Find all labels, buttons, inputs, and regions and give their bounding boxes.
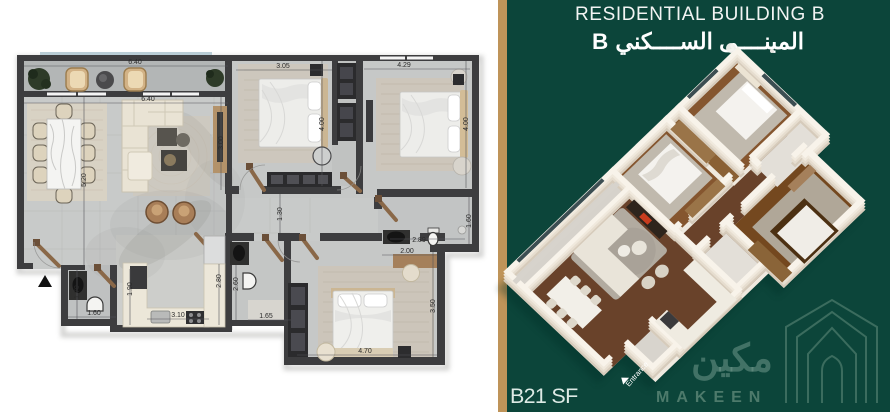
svg-text:1.30: 1.30 xyxy=(277,207,284,221)
svg-text:MAKEEN: MAKEEN xyxy=(656,389,767,406)
svg-text:6.40: 6.40 xyxy=(128,59,142,66)
svg-text:2.89: 2.89 xyxy=(412,237,426,244)
svg-text:4.70: 4.70 xyxy=(358,348,372,355)
svg-text:RESIDENTIAL BUILDING B: RESIDENTIAL BUILDING B xyxy=(575,4,825,25)
svg-text:4.00: 4.00 xyxy=(319,117,326,131)
svg-text:1.90: 1.90 xyxy=(127,282,134,296)
svg-text:2.80: 2.80 xyxy=(216,274,223,288)
svg-text:3.10: 3.10 xyxy=(171,312,185,319)
svg-text:B21 SF: B21 SF xyxy=(510,384,578,408)
svg-text:1.60: 1.60 xyxy=(466,214,473,228)
svg-text:2.00: 2.00 xyxy=(400,248,414,255)
svg-text:5.20: 5.20 xyxy=(81,173,88,187)
svg-text:مكين: مكين xyxy=(691,338,773,381)
svg-text:1.65: 1.65 xyxy=(259,313,273,320)
svg-text:2.60: 2.60 xyxy=(233,277,240,291)
svg-text:1.70: 1.70 xyxy=(74,285,81,299)
svg-text:3.05: 3.05 xyxy=(276,63,290,70)
svg-text:3.00: 3.00 xyxy=(218,136,225,150)
svg-text:1.60: 1.60 xyxy=(87,310,101,317)
svg-text:4.29: 4.29 xyxy=(397,62,411,69)
svg-text:4.00: 4.00 xyxy=(463,117,470,131)
svg-text:6.40: 6.40 xyxy=(141,96,155,103)
svg-text:3.50: 3.50 xyxy=(430,299,437,313)
